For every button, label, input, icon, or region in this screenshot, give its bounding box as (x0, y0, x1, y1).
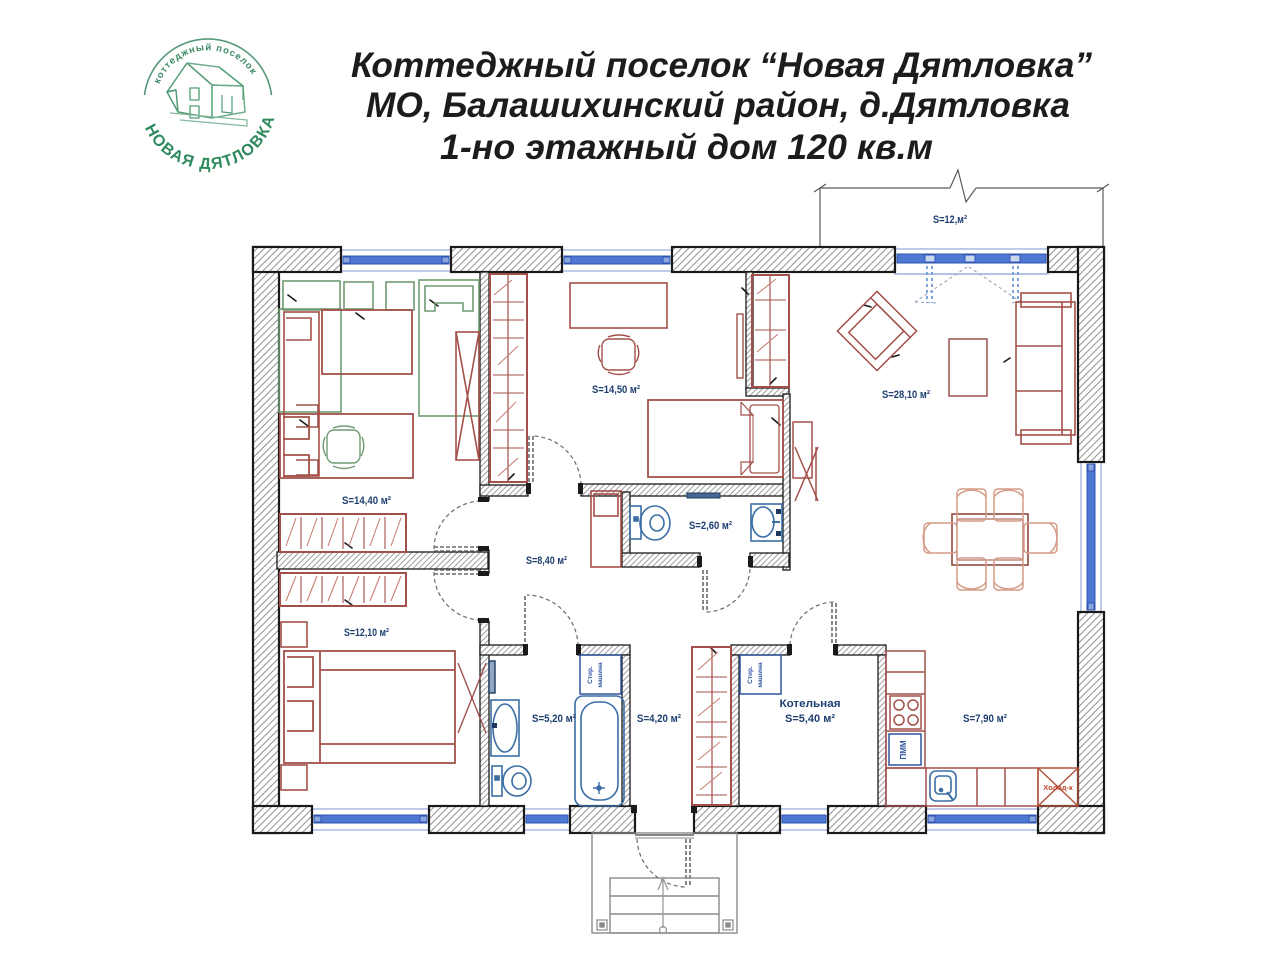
svg-text:S=12,м²: S=12,м² (933, 214, 967, 226)
svg-text:Коттеджный поселок “Новая Дятл: Коттеджный поселок “Новая Дятловка” (351, 46, 1092, 85)
svg-text:S=5,40 м²: S=5,40 м² (785, 713, 835, 725)
svg-text:1-но этажный дом 120 кв.м: 1-но этажный дом 120 кв.м (440, 128, 933, 167)
svg-text:S=5,20 м²: S=5,20 м² (532, 713, 576, 725)
svg-text:S=12,10 м²: S=12,10 м² (344, 627, 389, 639)
svg-text:S=14,50 м²: S=14,50 м² (592, 384, 640, 396)
svg-text:Холод-к: Холод-к (1043, 783, 1073, 792)
svg-text:МО, Балашихинский район, д.Дят: МО, Балашихинский район, д.Дятловка (366, 86, 1070, 125)
svg-text:S=28,10 м²: S=28,10 м² (882, 389, 930, 401)
svg-text:S=2,60 м²: S=2,60 м² (689, 520, 732, 532)
svg-text:машина: машина (597, 662, 604, 688)
svg-text:Котельная: Котельная (780, 698, 841, 710)
svg-text:S=7,90 м²: S=7,90 м² (963, 713, 1007, 725)
svg-text:S=4,20 м²: S=4,20 м² (637, 713, 681, 725)
svg-text:ПММ: ПММ (899, 740, 908, 759)
svg-text:НОВАЯ ДЯТЛОВКА: НОВАЯ ДЯТЛОВКА (141, 113, 279, 173)
svg-text:S=14,40 м²: S=14,40 м² (342, 495, 391, 507)
svg-text:Стир.: Стир. (747, 666, 754, 684)
svg-text:S=8,40 м²: S=8,40 м² (526, 555, 567, 567)
svg-text:Стир.: Стир. (587, 666, 594, 684)
svg-text:машина: машина (757, 662, 764, 688)
